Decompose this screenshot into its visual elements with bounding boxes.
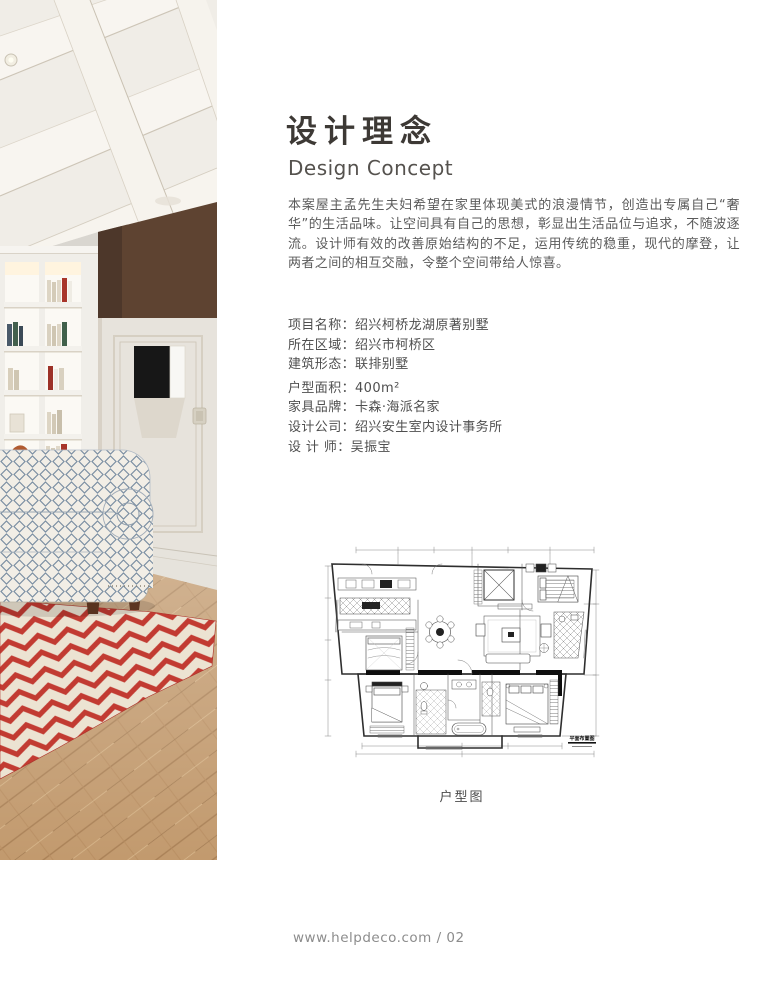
wall-speaker-box — [134, 346, 170, 398]
armchair — [0, 450, 155, 617]
dining-table — [426, 616, 454, 648]
elevator — [474, 570, 514, 604]
detail-building-type: 建筑形态：联排别墅 — [288, 355, 502, 375]
intro-paragraph: 本案屋主孟先生夫妇希望在家里体现美式的浪漫情节，创造出专属自己“奢华”的生活品味… — [288, 196, 740, 273]
page-subtitle: Design Concept — [288, 156, 453, 180]
detail-area: 户型面积：400m² — [288, 379, 502, 399]
bathrooms-middle — [416, 680, 500, 735]
living-room — [476, 604, 551, 663]
bathroom-right — [554, 612, 584, 658]
interior-photo-art — [0, 0, 217, 860]
plan-title-block: 平面布置图 — [568, 735, 596, 747]
kitchen — [338, 578, 416, 630]
interior-photo — [0, 0, 217, 860]
ceiling-speaker — [155, 197, 181, 206]
svg-text:平面布置图: 平面布置图 — [569, 735, 594, 742]
bedroom-lower-right — [506, 680, 558, 732]
magazine-page: 设计理念 Design Concept 本案屋主孟先生夫妇希望在家里体现美式的浪… — [0, 0, 762, 1000]
page-title: 设计理念 — [286, 106, 438, 151]
bedroom-left-mid — [366, 628, 414, 670]
detail-project-name: 项目名称：绍兴柯桥龙湖原著别墅 — [288, 316, 502, 336]
floor-plan-caption: 户型图 — [322, 786, 602, 805]
page-footer: www.helpdeco.com / 02 — [293, 930, 465, 946]
detail-furniture-brand: 家具品牌：卡森·海派名家 — [288, 398, 502, 418]
bedroom-lower-left — [366, 682, 408, 733]
detail-region: 所在区域：绍兴市柯桥区 — [288, 336, 502, 356]
detail-design-company: 设计公司：绍兴安生室内设计事务所 — [288, 418, 502, 438]
detail-designer: 设 计 师：吴振宝 — [288, 438, 502, 458]
floor-plan-drawing: 平面布置图 — [322, 540, 602, 768]
bedroom-top-right — [526, 564, 578, 602]
floor-plan: 平面布置图 — [322, 540, 602, 768]
project-details: 项目名称：绍兴柯桥龙湖原著别墅 所在区域：绍兴市柯桥区 建筑形态：联排别墅 户型… — [288, 316, 502, 457]
